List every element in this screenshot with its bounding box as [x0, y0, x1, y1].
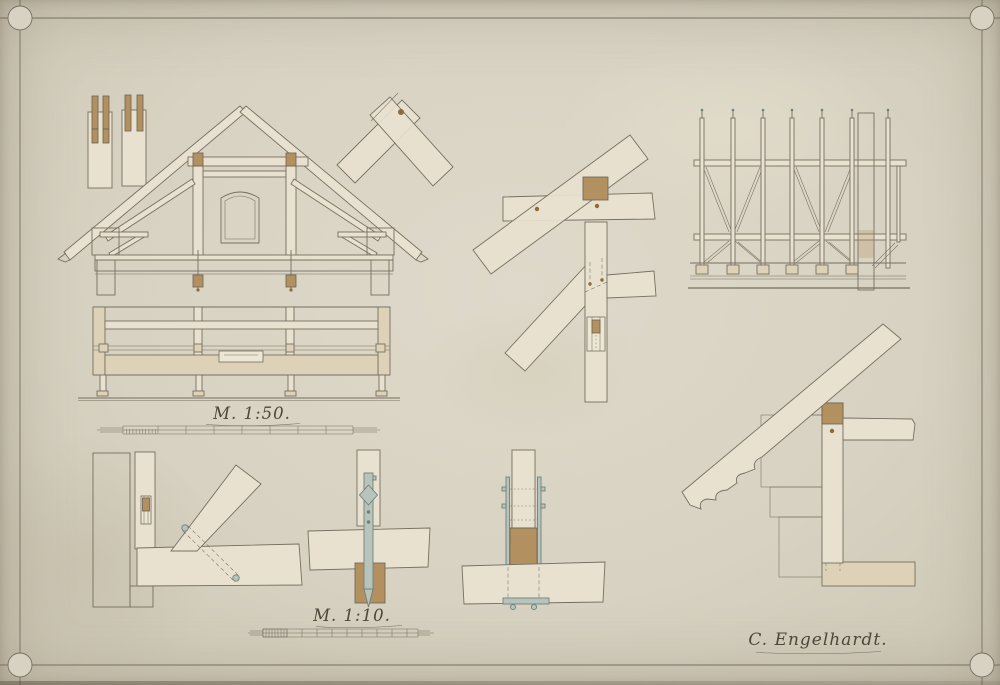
corner-circle [8, 653, 32, 677]
strut [171, 465, 261, 551]
attic-window [221, 192, 259, 243]
mortise-detail [587, 317, 605, 351]
post-iron-strap-base-detail [462, 450, 605, 610]
iron-strap [538, 477, 542, 567]
corner-circle [970, 653, 994, 677]
post [512, 450, 535, 528]
iron-strap [506, 477, 510, 567]
ridge-joint-detail [337, 93, 453, 186]
wall-post-strut-detail [93, 452, 302, 607]
corner-circle [8, 6, 32, 30]
bolt-head [182, 525, 188, 531]
post [822, 403, 843, 563]
label-underline [206, 424, 300, 426]
bolt-nut [510, 604, 515, 609]
scale-label-1-50: M. 1:50. [212, 404, 291, 423]
base-plate [503, 598, 549, 604]
plate-drawing: M. 1:50. [0, 0, 1000, 685]
corner-circle [970, 6, 994, 30]
peg-dot [535, 207, 539, 211]
drawing-sheet: M. 1:50. [0, 0, 1000, 685]
signature-text: C. Engelhardt. [748, 630, 887, 650]
beam [137, 544, 302, 586]
label-underline [316, 626, 402, 628]
profiled-rafter [682, 324, 901, 509]
signature-underline [756, 652, 881, 654]
peg-dot [830, 429, 834, 433]
fork-tenon-details [88, 95, 146, 188]
oak-saddle-block [583, 177, 608, 200]
eaves-cornice-detail [682, 324, 915, 586]
base-beam [822, 562, 915, 586]
bolt-nut [233, 575, 239, 581]
peg-dot [398, 109, 404, 115]
oak-block [822, 403, 843, 424]
iron-hanger-bolt-detail [308, 450, 430, 607]
brick-wall [93, 453, 130, 607]
truss-post [193, 166, 203, 258]
diagonal-braces [703, 167, 854, 263]
rafter-purlin-joint-detail [473, 135, 656, 402]
post [585, 222, 607, 402]
beam-ends [696, 265, 858, 274]
tie-beam [95, 260, 393, 271]
scale-bar-1-10 [248, 629, 434, 637]
scale-label-1-10: M. 1:10. [312, 606, 391, 625]
bolt-nut [531, 604, 536, 609]
oak-block [510, 528, 537, 567]
scale-bar-1-50 [97, 426, 380, 434]
tie-beam-plan-view [78, 307, 400, 401]
peg-dot [595, 204, 599, 208]
roof-longitudinal-section [688, 109, 910, 290]
brick-chimney [858, 113, 874, 290]
beam [843, 418, 915, 440]
